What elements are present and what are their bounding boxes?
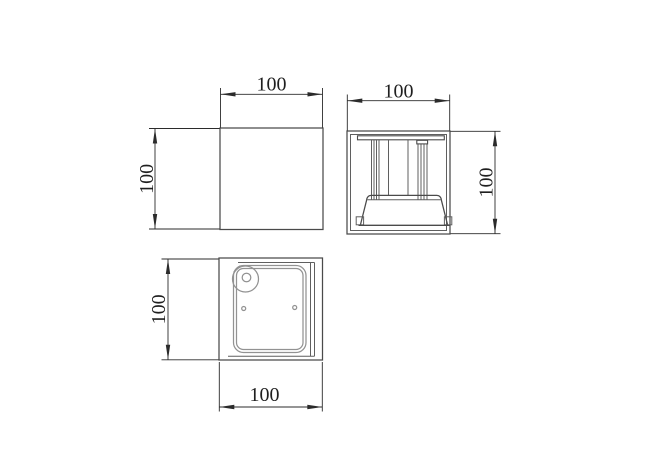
back-plate	[233, 266, 307, 353]
side-view: 100 100	[347, 81, 501, 235]
dim-arrow-up	[166, 259, 170, 274]
side-height-label: 100	[476, 168, 498, 198]
bottom-view: 100 100	[148, 258, 323, 412]
drawing-canvas: 100 100	[0, 0, 650, 459]
bottom-width-label: 100	[250, 384, 280, 406]
bracket-channel	[228, 263, 315, 357]
bottom-height-dimension: 100	[148, 259, 219, 360]
front-view: 100 100	[136, 74, 323, 230]
screw-hole-right	[293, 306, 297, 310]
lamp-base	[356, 195, 452, 225]
side-width-dimension: 100	[347, 81, 449, 131]
dim-arrow-right	[435, 99, 450, 103]
dim-arrow-up	[493, 131, 497, 146]
dim-arrow-right	[308, 92, 323, 96]
dim-arrow-down	[153, 214, 157, 229]
dim-arrow-left	[219, 405, 234, 409]
screw-head	[417, 140, 428, 144]
side-width-label: 100	[384, 81, 414, 103]
dim-arrow-down	[166, 345, 170, 360]
front-width-dimension: 100	[221, 74, 323, 128]
front-height-dimension: 100	[136, 129, 219, 230]
front-height-label: 100	[136, 164, 158, 194]
bottom-view-outline	[219, 258, 323, 360]
dim-arrow-down	[493, 219, 497, 234]
side-view-inner-frame	[351, 135, 447, 231]
dim-arrow-right	[307, 405, 322, 409]
front-width-label: 100	[257, 74, 287, 96]
dim-arrow-left	[221, 92, 236, 96]
technical-drawing: 100 100	[0, 0, 650, 459]
cable-hole-circle	[242, 273, 251, 282]
bottom-width-dimension: 100	[219, 362, 322, 412]
support-rods	[372, 140, 428, 200]
screw-hole-left	[242, 307, 246, 311]
dim-arrow-up	[153, 129, 157, 144]
dim-arrow-left	[347, 99, 362, 103]
side-height-dimension: 100	[451, 131, 501, 233]
front-view-outline	[220, 128, 323, 230]
mounting-plate	[358, 136, 445, 140]
bottom-height-label: 100	[148, 294, 170, 324]
